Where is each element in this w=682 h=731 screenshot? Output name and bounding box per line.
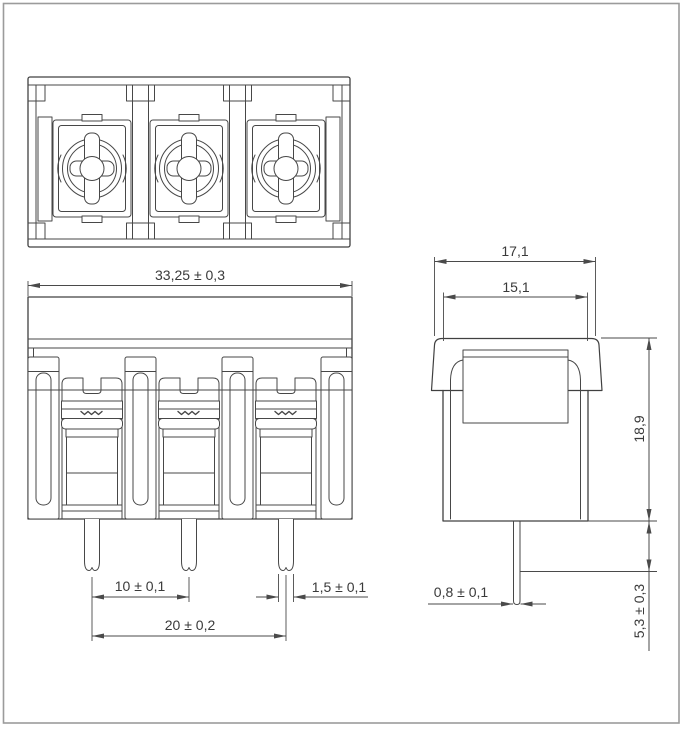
front-view-pillar-mid-1 — [125, 357, 156, 519]
front-view-pin-1 — [85, 519, 100, 571]
dimension-label-body-height: 18,9 — [631, 415, 647, 442]
front-view-pillar-mid-2 — [222, 357, 253, 519]
top-view-screw-pole-3 — [247, 115, 325, 223]
dimension-label-outer-pin-span: 20 ± 0,2 — [165, 617, 216, 633]
side-view — [432, 339, 603, 605]
engineering-drawing: 33,25 ± 0,3 10 ± 0,1 20 ± 0,2 1,5 ± 0,1 … — [0, 0, 682, 731]
dimension-label-side-overall-width: 17,1 — [501, 243, 528, 259]
front-view-clamp-3 — [256, 378, 317, 519]
dimension-pin-length: 5,3 ± 0,3 — [521, 521, 658, 651]
dimension-label-pin-width: 1,5 ± 0,1 — [312, 579, 367, 595]
dimension-label-pin-length: 5,3 ± 0,3 — [631, 584, 647, 639]
side-view-pin — [514, 521, 521, 605]
front-view-clamp-2 — [159, 378, 220, 519]
side-view-opening — [463, 350, 568, 423]
top-view — [28, 77, 350, 247]
front-view-pin-3 — [279, 519, 294, 571]
front-view-clamp-1 — [62, 378, 123, 519]
dimension-side-body-width: 15,1 — [444, 279, 588, 341]
front-view — [28, 297, 352, 571]
dimension-label-pin-thickness: 0,8 ± 0,1 — [434, 584, 489, 600]
dimension-front-overall-width: 33,25 ± 0,3 — [28, 267, 352, 296]
top-view-screw-pole-2 — [150, 115, 228, 223]
technical-drawing-page: 33,25 ± 0,3 10 ± 0,1 20 ± 0,2 1,5 ± 0,1 … — [0, 0, 682, 731]
front-view-pillar-left — [28, 357, 59, 519]
dimension-label-front-overall-width: 33,25 ± 0,3 — [155, 267, 225, 283]
dimension-pin-thickness: 0,8 ± 0,1 — [428, 584, 546, 607]
front-view-pillar-right — [321, 357, 352, 519]
top-view-screw-pole-1 — [53, 115, 131, 223]
dimension-label-pin-pitch: 10 ± 0,1 — [115, 578, 166, 594]
dimension-pin-width: 1,5 ± 0,1 — [256, 574, 368, 602]
dimension-label-side-body-width: 15,1 — [502, 279, 529, 295]
front-view-pin-2 — [182, 519, 197, 571]
